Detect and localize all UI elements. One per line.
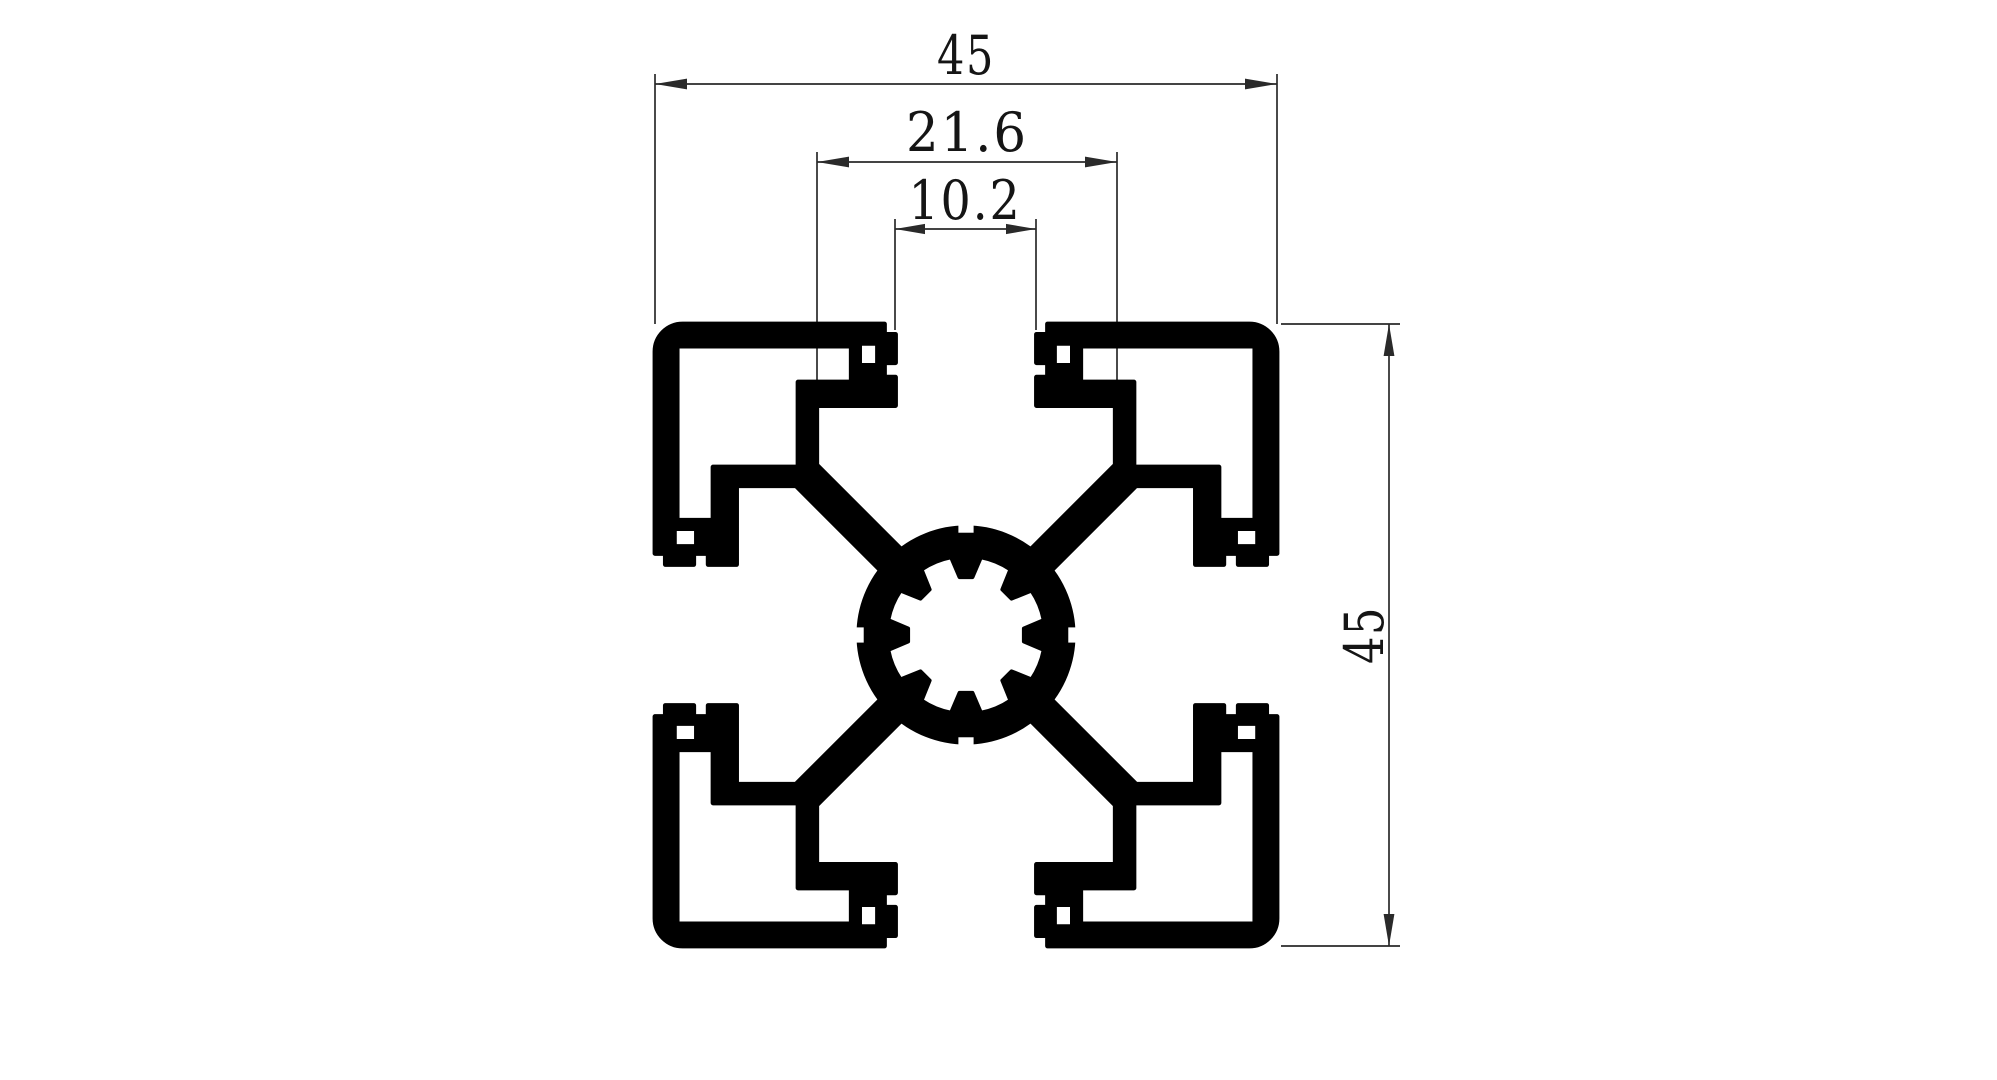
profile-drawing-svg: 45 21.6 10.2 45 bbox=[0, 0, 1997, 1080]
ring-notch-right bbox=[1068, 627, 1082, 642]
arrowhead bbox=[655, 79, 687, 90]
arrowhead bbox=[1085, 157, 1117, 168]
corner-unit-top-left bbox=[655, 324, 916, 585]
corner-unit-top-right bbox=[1016, 324, 1277, 585]
dim-overall-height-label: 45 bbox=[1333, 606, 1396, 664]
arrowhead bbox=[1245, 79, 1277, 90]
arrowhead bbox=[817, 157, 849, 168]
dim-slot-opening bbox=[895, 219, 1036, 330]
corner-unit-bottom-left bbox=[655, 685, 916, 946]
dim-overall-width-label: 45 bbox=[937, 24, 995, 87]
dim-slot-opening-label: 10.2 bbox=[909, 169, 1022, 232]
dimension-annotations bbox=[655, 74, 1400, 946]
arrowhead bbox=[1384, 324, 1395, 356]
ring-notch-left bbox=[850, 627, 864, 642]
corner-unit-bottom-right bbox=[1016, 685, 1277, 946]
ring-notch-bottom bbox=[958, 737, 973, 751]
ring-notch-top bbox=[958, 519, 973, 533]
arrowhead bbox=[1384, 914, 1395, 946]
profile-cross-section bbox=[655, 324, 1277, 946]
dim-slot-inner-label: 21.6 bbox=[906, 101, 1028, 164]
drawing-canvas: 45 21.6 10.2 45 bbox=[0, 0, 1997, 1080]
center-ring-with-spline-bore bbox=[858, 527, 1074, 743]
